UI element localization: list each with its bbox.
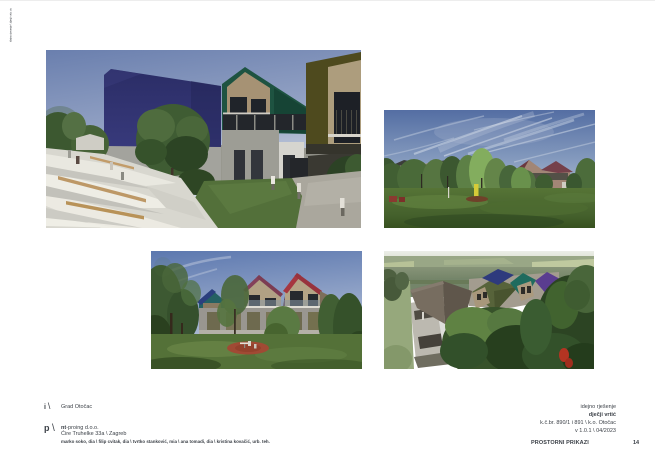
svg-text:idejno rjesenje \ djecji vrtic: idejno rjesenje \ djecji vrtic otocac bbox=[9, 8, 13, 42]
